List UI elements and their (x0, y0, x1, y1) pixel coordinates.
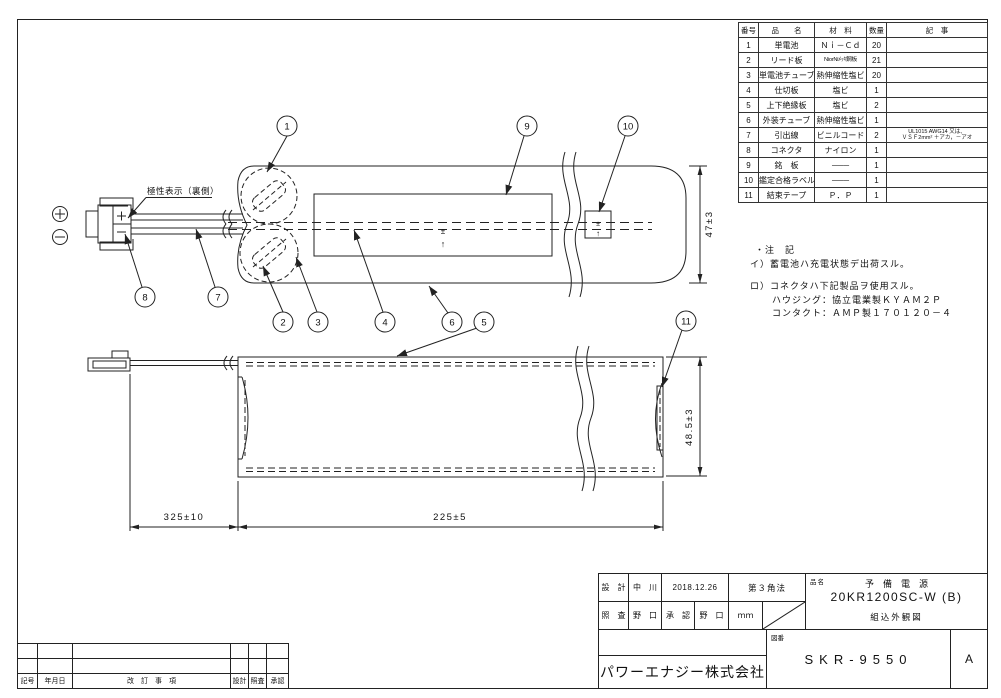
approver-name: 野 口 (694, 601, 729, 630)
rev-check-label: 照査 (248, 673, 267, 689)
label-arrow-mark: ↑ (596, 229, 600, 238)
part-no: 8 (739, 143, 759, 158)
part-remarks (887, 38, 988, 53)
part-material: 熱伸縮性塩ビ (815, 68, 867, 83)
table-row: 11結束テープＰ．Ｐ1 (739, 188, 988, 203)
part-remarks: UL1015 AWG14 又は、ＶＳＦ2mm² ＋アカ，－アオ (887, 128, 988, 143)
part-name: 引出線 (759, 128, 815, 143)
nameplate (314, 194, 552, 256)
part-remarks (887, 188, 988, 203)
table-row: 4仕切板塩ビ1 (739, 83, 988, 98)
designer-name: 中 川 (628, 573, 662, 602)
battery-outline-top (238, 166, 686, 283)
part-remarks (887, 98, 988, 113)
approve-label: 承 認 (661, 601, 695, 630)
rev-approve-label: 承認 (266, 673, 289, 689)
part-material: ─── (815, 173, 867, 188)
part-name: 結束テープ (759, 188, 815, 203)
battery-outline-side (238, 357, 663, 477)
table-row: 2リード板NiorNiﾒｯｷ鋼板21 (739, 53, 988, 68)
rev-row-cell (266, 643, 289, 659)
design-label: 設 計 (598, 573, 629, 602)
header-qty: 数量 (867, 23, 887, 38)
part-name: 外装チューブ (759, 113, 815, 128)
rev-sign-label: 記号 (17, 673, 38, 689)
connector-top (86, 198, 133, 250)
rev-design-label: 設計 (230, 673, 249, 689)
rev-row-cell (248, 643, 267, 659)
part-name: 単電池チューブ (759, 68, 815, 83)
part-remarks (887, 68, 988, 83)
table-row: 8コネクタナイロン1 (739, 143, 988, 158)
table-row: 10鑑定合格ラベル───1 (739, 173, 988, 188)
header-name: 品 名 (759, 23, 815, 38)
table-row: 3単電池チューブ熱伸縮性塩ビ20 (739, 68, 988, 83)
callout-4: 4 (382, 318, 387, 329)
callout-9: 9 (524, 122, 529, 133)
part-qty: 1 (867, 83, 887, 98)
tube-hidden-lines (246, 363, 655, 472)
part-qty: 20 (867, 38, 887, 53)
model-number: 20KR1200SC-W (B) (806, 590, 987, 604)
company-name: パワーエナジー株式会社 (598, 655, 767, 689)
callout-leaders (125, 136, 682, 387)
drawing-sheet: 1 2 3 4 5 6 7 8 9 10 11 325±10 225±5 47±… (0, 0, 1001, 698)
side-view (88, 346, 707, 531)
nameplate-arrow-mark: ↑ (441, 239, 446, 249)
parts-table-header: 番号 品 名 材 料 数量 記 事 (739, 23, 988, 38)
plus-terminal-icon (53, 207, 68, 222)
part-no: 7 (739, 128, 759, 143)
drawing-number: SKR-9550 (805, 652, 913, 667)
drawing-number-label: 図番 (771, 632, 784, 642)
callout-5: 5 (481, 318, 486, 329)
part-qty: 20 (867, 68, 887, 83)
part-no: 9 (739, 158, 759, 173)
rev-row-cell (230, 658, 249, 674)
dim-height-top-text: 47±3 (704, 210, 715, 237)
rev-row-cell (37, 658, 73, 674)
break-lines-side (576, 346, 596, 491)
rev-date-label: 年月日 (37, 673, 73, 689)
part-no: 1 (739, 38, 759, 53)
note-b-housing: ハウジング：協立電業製ＫＹＡＭ２Ｐ (772, 293, 942, 306)
dim-lead-length: 325±10 (164, 512, 205, 523)
part-qty: 2 (867, 98, 887, 113)
connector-side (88, 351, 238, 371)
note-b-contact: コンタクト：ＡＭＰ製１７０１２０－４ (772, 306, 952, 319)
part-name: 仕切板 (759, 83, 815, 98)
rev-row-cell (17, 643, 38, 659)
part-no: 4 (739, 83, 759, 98)
part-name: 予 備 電 源 (806, 577, 987, 590)
rev-row-cell (248, 658, 267, 674)
part-material: ビニルコード (815, 128, 867, 143)
part-no: 10 (739, 173, 759, 188)
top-view (53, 152, 708, 297)
callout-3: 3 (315, 318, 320, 329)
drawing-number-cell: 図番 SKR-9550 (766, 629, 951, 689)
table-row: 6外装チューブ熱伸縮性塩ビ1 (739, 113, 988, 128)
part-name: 鑑定合格ラベル (759, 173, 815, 188)
end-cells-hidden-lines (240, 168, 298, 282)
rev-row-cell (230, 643, 249, 659)
header-material: 材 料 (815, 23, 867, 38)
part-remarks (887, 83, 988, 98)
part-name: 単電池 (759, 38, 815, 53)
projection-symbol-cell (762, 601, 806, 630)
part-material: 塩ビ (815, 83, 867, 98)
break-lines-top (563, 152, 583, 297)
check-label: 照 査 (598, 601, 629, 630)
part-remarks (887, 113, 988, 128)
part-name-box: 品名 予 備 電 源 20KR1200SC-W (B) 組込外観図 (805, 573, 988, 630)
parts-table: 番号 品 名 材 料 数量 記 事 1単電池Ｎｉ－Ｃｄ20 2リード板NiorN… (738, 22, 988, 203)
checker-name: 野 口 (628, 601, 662, 630)
part-qty: 1 (867, 173, 887, 188)
part-remarks (887, 53, 988, 68)
part-remarks (887, 173, 988, 188)
projection-method: 第３角法 (728, 573, 806, 602)
part-no: 2 (739, 53, 759, 68)
table-row: 9銘 板───1 (739, 158, 988, 173)
table-row: 1単電池Ｎｉ－Ｃｄ20 (739, 38, 988, 53)
binding-tape (656, 383, 664, 457)
part-remarks (887, 143, 988, 158)
rev-item-label: 改 訂 事 項 (72, 673, 231, 689)
doc-type: 組込外観図 (806, 611, 987, 623)
callout-6: 6 (449, 318, 454, 329)
part-name: 上下絶縁板 (759, 98, 815, 113)
part-qty: 1 (867, 113, 887, 128)
part-material: ─── (815, 158, 867, 173)
callout-1: 1 (284, 122, 289, 133)
part-no: 5 (739, 98, 759, 113)
spare-cell (598, 629, 767, 656)
callout-2: 2 (280, 318, 285, 329)
polarity-leader (128, 198, 212, 219)
part-no: 6 (739, 113, 759, 128)
part-material: ナイロン (815, 143, 867, 158)
callout-7: 7 (215, 293, 220, 304)
part-qty: 2 (867, 128, 887, 143)
part-material: 塩ビ (815, 98, 867, 113)
rev-row-cell (17, 658, 38, 674)
part-name: リード板 (759, 53, 815, 68)
part-material: Ｐ．Ｐ (815, 188, 867, 203)
part-qty: 1 (867, 158, 887, 173)
part-material: NiorNiﾒｯｷ鋼板 (815, 53, 867, 68)
diagonal-line (763, 602, 805, 629)
callout-10: 10 (623, 122, 634, 133)
dim-body-length: 225±5 (433, 512, 467, 523)
rev-row-cell (37, 643, 73, 659)
left-end-cell (238, 377, 248, 459)
part-material: Ｎｉ－Ｃｄ (815, 38, 867, 53)
design-date: 2018.12.26 (661, 573, 729, 602)
table-row: 5上下絶縁板塩ビ2 (739, 98, 988, 113)
rev-row-cell (266, 658, 289, 674)
unit-cell: ｍｍ (728, 601, 763, 630)
callout-8: 8 (142, 293, 147, 304)
minus-terminal-icon (53, 230, 68, 245)
revision-cell: A (950, 629, 988, 689)
part-no: 3 (739, 68, 759, 83)
table-row: 7引出線ビニルコード2UL1015 AWG14 又は、ＶＳＦ2mm² ＋アカ，－… (739, 128, 988, 143)
part-qty: 1 (867, 188, 887, 203)
note-b: ロ）コネクタハ下記製品ヲ使用スル。 (750, 279, 920, 292)
callout-11: 11 (681, 317, 691, 328)
part-name: コネクタ (759, 143, 815, 158)
lead-wires-top (131, 210, 243, 238)
notes-title: ・注 記 (755, 243, 795, 256)
part-remarks (887, 158, 988, 173)
dim-lengths (130, 374, 663, 531)
label-polarity-mark: ± (596, 221, 600, 228)
part-name: 銘 板 (759, 158, 815, 173)
part-no: 11 (739, 188, 759, 203)
part-qty: 21 (867, 53, 887, 68)
note-a: イ）蓄電池ハ充電状態デ出荷スル。 (750, 257, 910, 270)
dim-height-side-text: 48.5±3 (684, 408, 695, 446)
header-remarks: 記 事 (887, 23, 988, 38)
header-no: 番号 (739, 23, 759, 38)
nameplate-polarity-mark: ± (441, 227, 446, 236)
part-material: 熱伸縮性塩ビ (815, 113, 867, 128)
rev-row-cell (72, 658, 231, 674)
part-qty: 1 (867, 143, 887, 158)
rev-row-cell (72, 643, 231, 659)
polarity-label: 極性表示（裏側） (147, 186, 219, 196)
